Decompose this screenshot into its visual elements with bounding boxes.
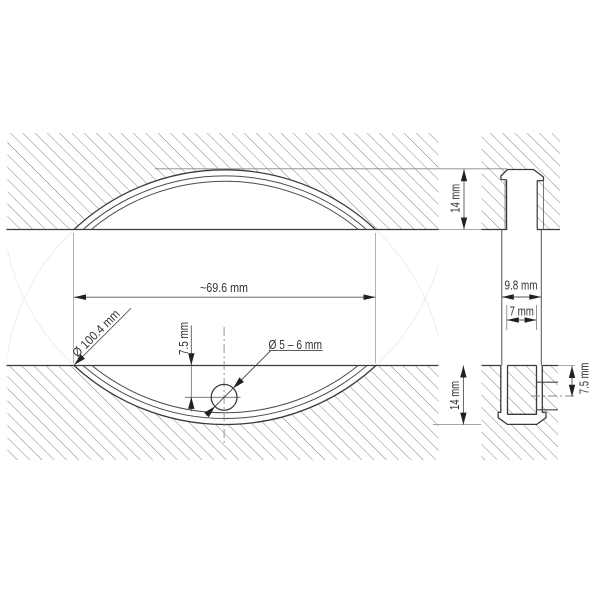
svg-text:7 mm: 7 mm	[509, 304, 534, 318]
svg-text:7.5 mm: 7.5 mm	[177, 322, 191, 355]
svg-text:7.5 mm: 7.5 mm	[578, 363, 592, 395]
svg-text:9.8 mm: 9.8 mm	[505, 279, 538, 293]
svg-text:14 mm: 14 mm	[448, 381, 462, 410]
svg-text:Ø 5 – 6 mm: Ø 5 – 6 mm	[269, 338, 323, 352]
svg-text:~69.6 mm: ~69.6 mm	[200, 281, 248, 295]
svg-text:14 mm: 14 mm	[449, 184, 463, 213]
